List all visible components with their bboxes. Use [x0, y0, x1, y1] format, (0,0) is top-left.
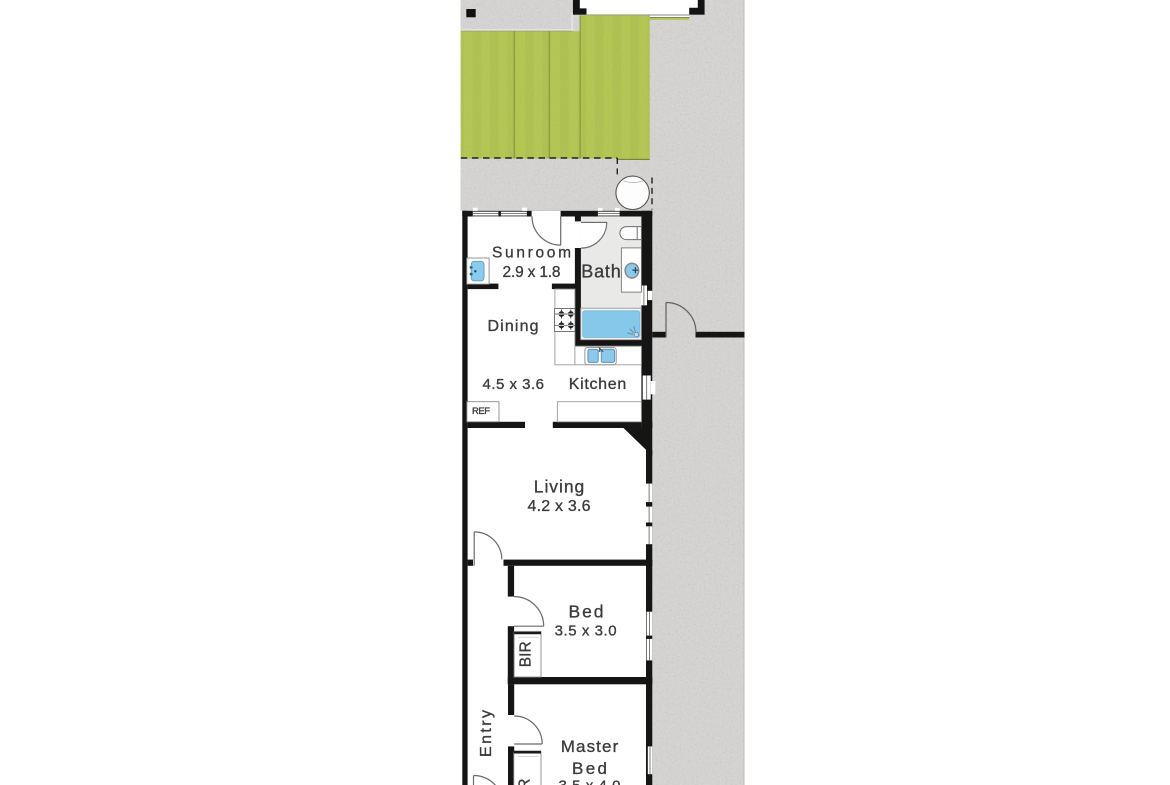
svg-text:4.5 x 3.6: 4.5 x 3.6: [482, 376, 544, 393]
svg-text:Living: Living: [534, 477, 585, 497]
svg-text:4.2 x 3.6: 4.2 x 3.6: [528, 498, 591, 515]
svg-text:Bed: Bed: [572, 759, 607, 778]
svg-text:2.9 x 1.8: 2.9 x 1.8: [503, 264, 561, 281]
svg-text:Entry: Entry: [478, 710, 495, 757]
svg-text:Master: Master: [561, 737, 619, 756]
svg-text:3.5 x 3.0: 3.5 x 3.0: [555, 623, 617, 640]
svg-text:Bath: Bath: [581, 262, 621, 282]
svg-text:Bed: Bed: [569, 602, 604, 622]
svg-text:REF: REF: [472, 406, 490, 417]
svg-text:Dining: Dining: [488, 318, 539, 335]
svg-text:Kitchen: Kitchen: [569, 376, 627, 393]
svg-text:BIR: BIR: [517, 641, 534, 667]
svg-text:3.5 x 4.0: 3.5 x 4.0: [559, 778, 621, 785]
svg-text:BIR: BIR: [517, 779, 534, 785]
